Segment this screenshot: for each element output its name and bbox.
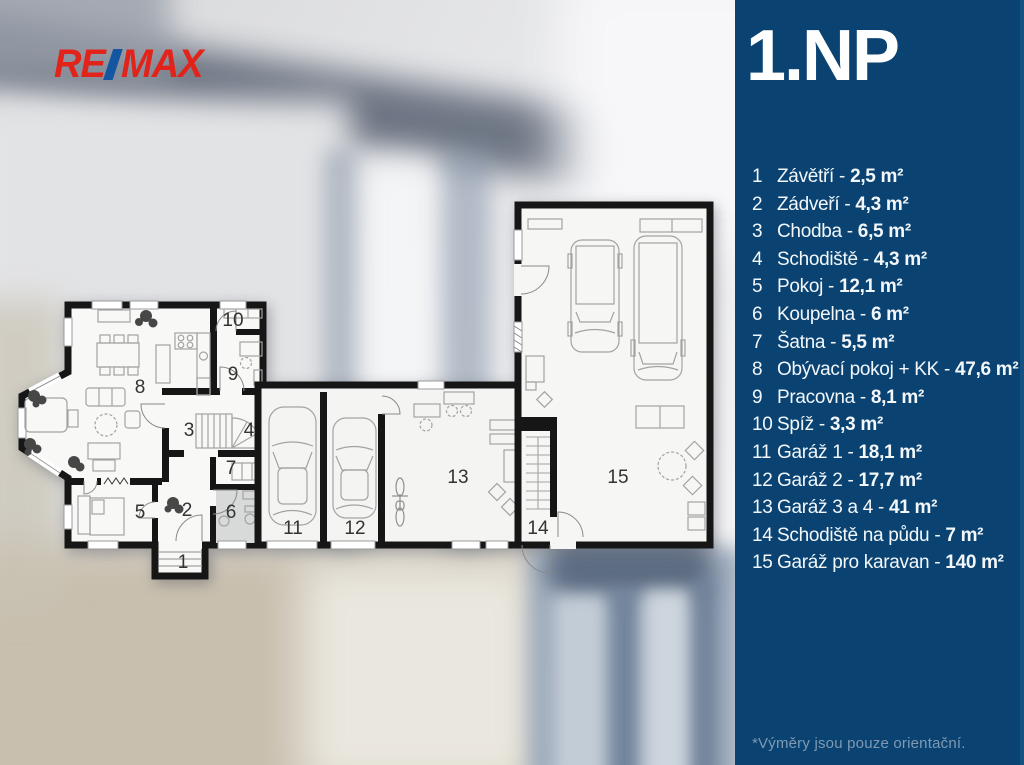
floor-title: 1.NP [746, 20, 898, 92]
legend-item-name: Schodiště na půdu [777, 525, 929, 547]
legend-item: 6Koupelna-6 m² [752, 304, 1016, 332]
legend-item-area: 41 m² [889, 497, 937, 519]
legend-item-name: Pokoj [777, 276, 823, 298]
legend-item-separator: - [847, 221, 853, 243]
legend-item-number: 1 [752, 166, 777, 188]
legend-item: 5Pokoj-12,1 m² [752, 276, 1016, 304]
legend-item-number: 11 [752, 442, 777, 464]
legend-item-number: 13 [752, 497, 777, 519]
legend-item-separator: - [830, 332, 836, 354]
room-label-10: 10 [222, 310, 243, 331]
legend-item-separator: - [944, 359, 950, 381]
legend-item-separator: - [934, 552, 940, 574]
logo-slash-icon [103, 49, 123, 80]
legend-item-area: 5,5 m² [841, 332, 894, 354]
legend-item-area: 4,3 m² [855, 194, 908, 216]
legend-item-separator: - [863, 249, 869, 271]
legend-item: 2Zádveří-4,3 m² [752, 194, 1016, 222]
room-label-15: 15 [607, 467, 628, 488]
legend-item-name: Koupelna [777, 304, 855, 326]
legend-item-name: Závětří [777, 166, 834, 188]
legend-item-separator: - [848, 442, 854, 464]
legend-item-area: 6,5 m² [858, 221, 911, 243]
legend-item-area: 2,5 m² [850, 166, 903, 188]
legend-item: 14Schodiště na půdu-7 m² [752, 525, 1016, 553]
legend-item: 3Chodba-6,5 m² [752, 221, 1016, 249]
legend-item-name: Pracovna [777, 387, 855, 409]
legend-item-name: Garáž 3 a 4 [777, 497, 873, 519]
legend-item-name: Spíž [777, 414, 814, 436]
legend-item: 12Garáž 2-17,7 m² [752, 470, 1016, 498]
room-label-6: 6 [226, 502, 237, 523]
room-label-11: 11 [283, 518, 303, 539]
room-label-2: 2 [182, 500, 193, 521]
legend-item-area: 7 m² [945, 525, 983, 547]
legend-panel: 1.NP 1Závětří-2,5 m² 2Zádveří-4,3 m² 3Ch… [735, 0, 1024, 765]
house-block [18, 301, 263, 576]
legend-item: 1Závětří-2,5 m² [752, 166, 1016, 194]
legend-item-separator: - [828, 276, 834, 298]
legend-item-number: 3 [752, 221, 777, 243]
legend-item-number: 12 [752, 470, 777, 492]
legend-item-separator: - [860, 304, 866, 326]
legend-item-number: 4 [752, 249, 777, 271]
legend-item-name: Schodiště [777, 249, 858, 271]
legend-item-name: Obývací pokoj + KK [777, 359, 939, 381]
legend-item-area: 6 m² [871, 304, 909, 326]
legend-item-number: 5 [752, 276, 777, 298]
footnote: *Výměry jsou pouze orientační. [752, 735, 966, 752]
legend-item: 15Garáž pro karavan-140 m² [752, 552, 1016, 580]
legend-item-name: Zádveří [777, 194, 839, 216]
legend-item-separator: - [839, 166, 845, 188]
room-label-9: 9 [228, 364, 239, 385]
room-label-7: 7 [226, 458, 237, 479]
legend-item-area: 18,1 m² [859, 442, 922, 464]
legend-item-number: 6 [752, 304, 777, 326]
legend-item: 7Šatna-5,5 m² [752, 332, 1016, 360]
legend-item-name: Garáž pro karavan [777, 552, 929, 574]
legend-item-area: 47,6 m² [955, 359, 1018, 381]
legend-item-name: Chodba [777, 221, 842, 243]
legend-item-number: 2 [752, 194, 777, 216]
legend-item: 13Garáž 3 a 4-41 m² [752, 497, 1016, 525]
caravan-garage-block [514, 205, 710, 549]
legend-item-number: 9 [752, 387, 777, 409]
room-label-5: 5 [135, 502, 146, 523]
legend-item-name: Šatna [777, 332, 825, 354]
legend-item: 11Garáž 1-18,1 m² [752, 442, 1016, 470]
legend-item-name: Garáž 1 [777, 442, 843, 464]
legend-item-name: Garáž 2 [777, 470, 843, 492]
legend-item-number: 14 [752, 525, 777, 547]
listing-image: RE MAX [0, 0, 1024, 765]
legend-item-area: 3,3 m² [830, 414, 883, 436]
legend-item-separator: - [844, 194, 850, 216]
room-label-3: 3 [184, 420, 195, 441]
legend-item-separator: - [819, 414, 825, 436]
legend-item-number: 8 [752, 359, 777, 381]
legend-item-separator: - [860, 387, 866, 409]
legend-item-number: 15 [752, 552, 777, 574]
legend-item-area: 17,7 m² [859, 470, 922, 492]
room-label-13: 13 [447, 467, 468, 488]
legend-item-separator: - [934, 525, 940, 547]
legend-item: 4Schodiště-4,3 m² [752, 249, 1016, 277]
room-legend-list: 1Závětří-2,5 m² 2Zádveří-4,3 m² 3Chodba-… [752, 166, 1016, 580]
room-label-1: 1 [178, 552, 189, 573]
legend-item: 9Pracovna-8,1 m² [752, 387, 1016, 415]
logo-max: MAX [121, 42, 203, 87]
legend-item-area: 140 m² [945, 552, 1003, 574]
legend-item-separator: - [848, 470, 854, 492]
legend-item-number: 7 [752, 332, 777, 354]
room-label-12: 12 [344, 518, 365, 539]
legend-item-area: 4,3 m² [874, 249, 927, 271]
room-label-4: 4 [244, 420, 255, 441]
logo-re: RE [54, 42, 105, 87]
legend-item-number: 10 [752, 414, 777, 436]
legend-item-area: 12,1 m² [839, 276, 902, 298]
legend-item-separator: - [878, 497, 884, 519]
room-label-8: 8 [135, 377, 146, 398]
legend-item: 8Obývací pokoj + KK-47,6 m² [752, 359, 1016, 387]
legend-item: 10Spíž-3,3 m² [752, 414, 1016, 442]
legend-item-area: 8,1 m² [871, 387, 924, 409]
room-label-14: 14 [527, 518, 549, 539]
remax-logo: RE MAX [54, 42, 203, 87]
